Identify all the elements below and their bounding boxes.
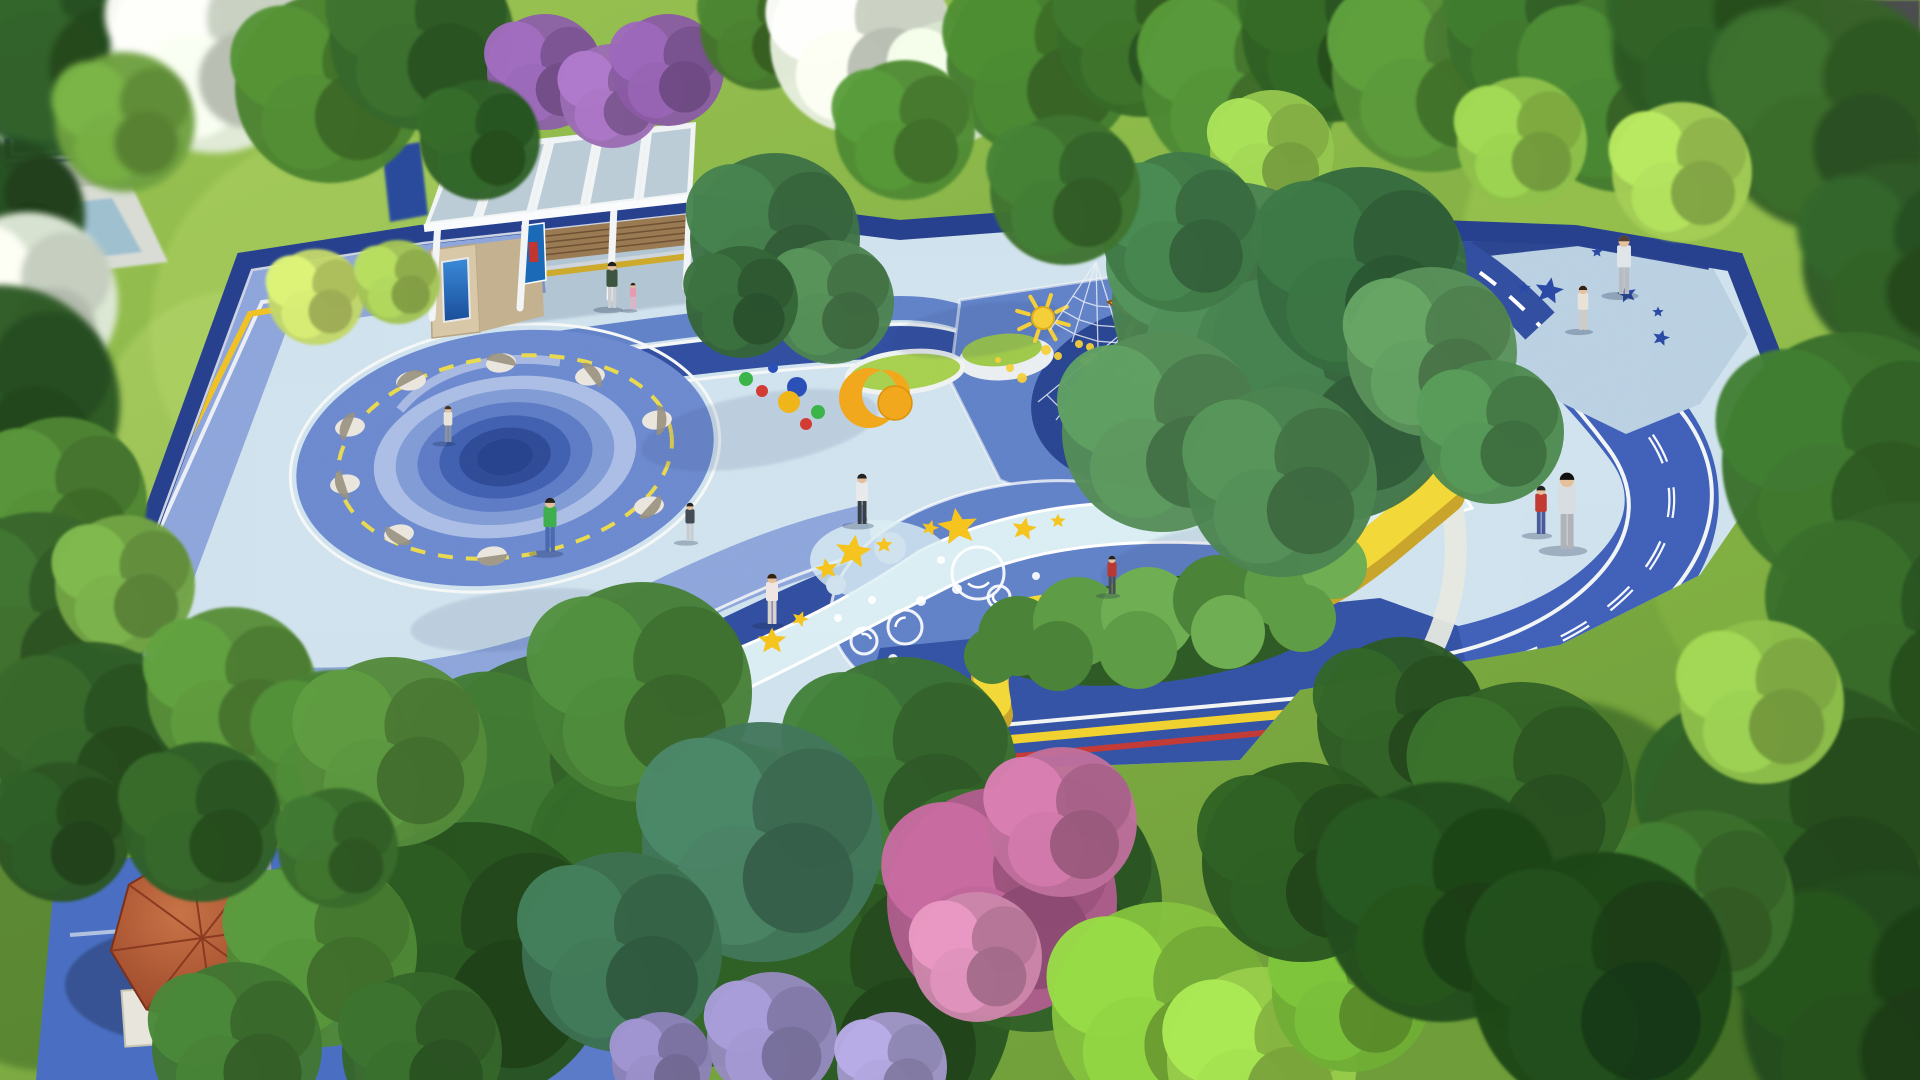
trail-dot (995, 357, 1001, 363)
shrub (1268, 584, 1336, 652)
person-shadow (1096, 593, 1120, 598)
doodle-dot (916, 596, 926, 606)
doodle-dot (952, 584, 962, 594)
doodle-dot (868, 596, 876, 604)
trail-dot (1006, 364, 1014, 372)
pale-disc (874, 532, 906, 564)
color-dot (778, 391, 800, 413)
doodle-dot (937, 556, 945, 564)
doodle-dot (834, 614, 842, 622)
poster-screen (442, 258, 470, 322)
pale-disc (826, 575, 846, 595)
trail-dot (1054, 352, 1062, 360)
color-dot (811, 405, 825, 419)
scene-canvas (0, 0, 1920, 1080)
color-dot (768, 363, 778, 373)
shrub (1023, 621, 1093, 691)
doodle-dot (1032, 572, 1040, 580)
trail-dot (1041, 345, 1051, 355)
playground-aerial-render (0, 0, 1920, 1080)
shrub (1191, 595, 1265, 669)
shrub (1099, 611, 1177, 689)
glass-panel (641, 126, 693, 200)
planet-ball-painting (878, 386, 912, 420)
color-dot (756, 385, 768, 397)
person-shadow (593, 307, 622, 313)
color-dot (800, 418, 812, 430)
color-dot (739, 372, 753, 386)
person-shadow (621, 309, 638, 313)
person-shadow (1565, 329, 1593, 335)
person-shadow (432, 441, 455, 446)
banner-graphic (528, 242, 538, 262)
person-shadow (674, 540, 698, 545)
trail-dot (1017, 373, 1027, 383)
sun-disc (1032, 307, 1054, 329)
shrub (964, 628, 1020, 684)
trail-dot (1075, 340, 1083, 348)
